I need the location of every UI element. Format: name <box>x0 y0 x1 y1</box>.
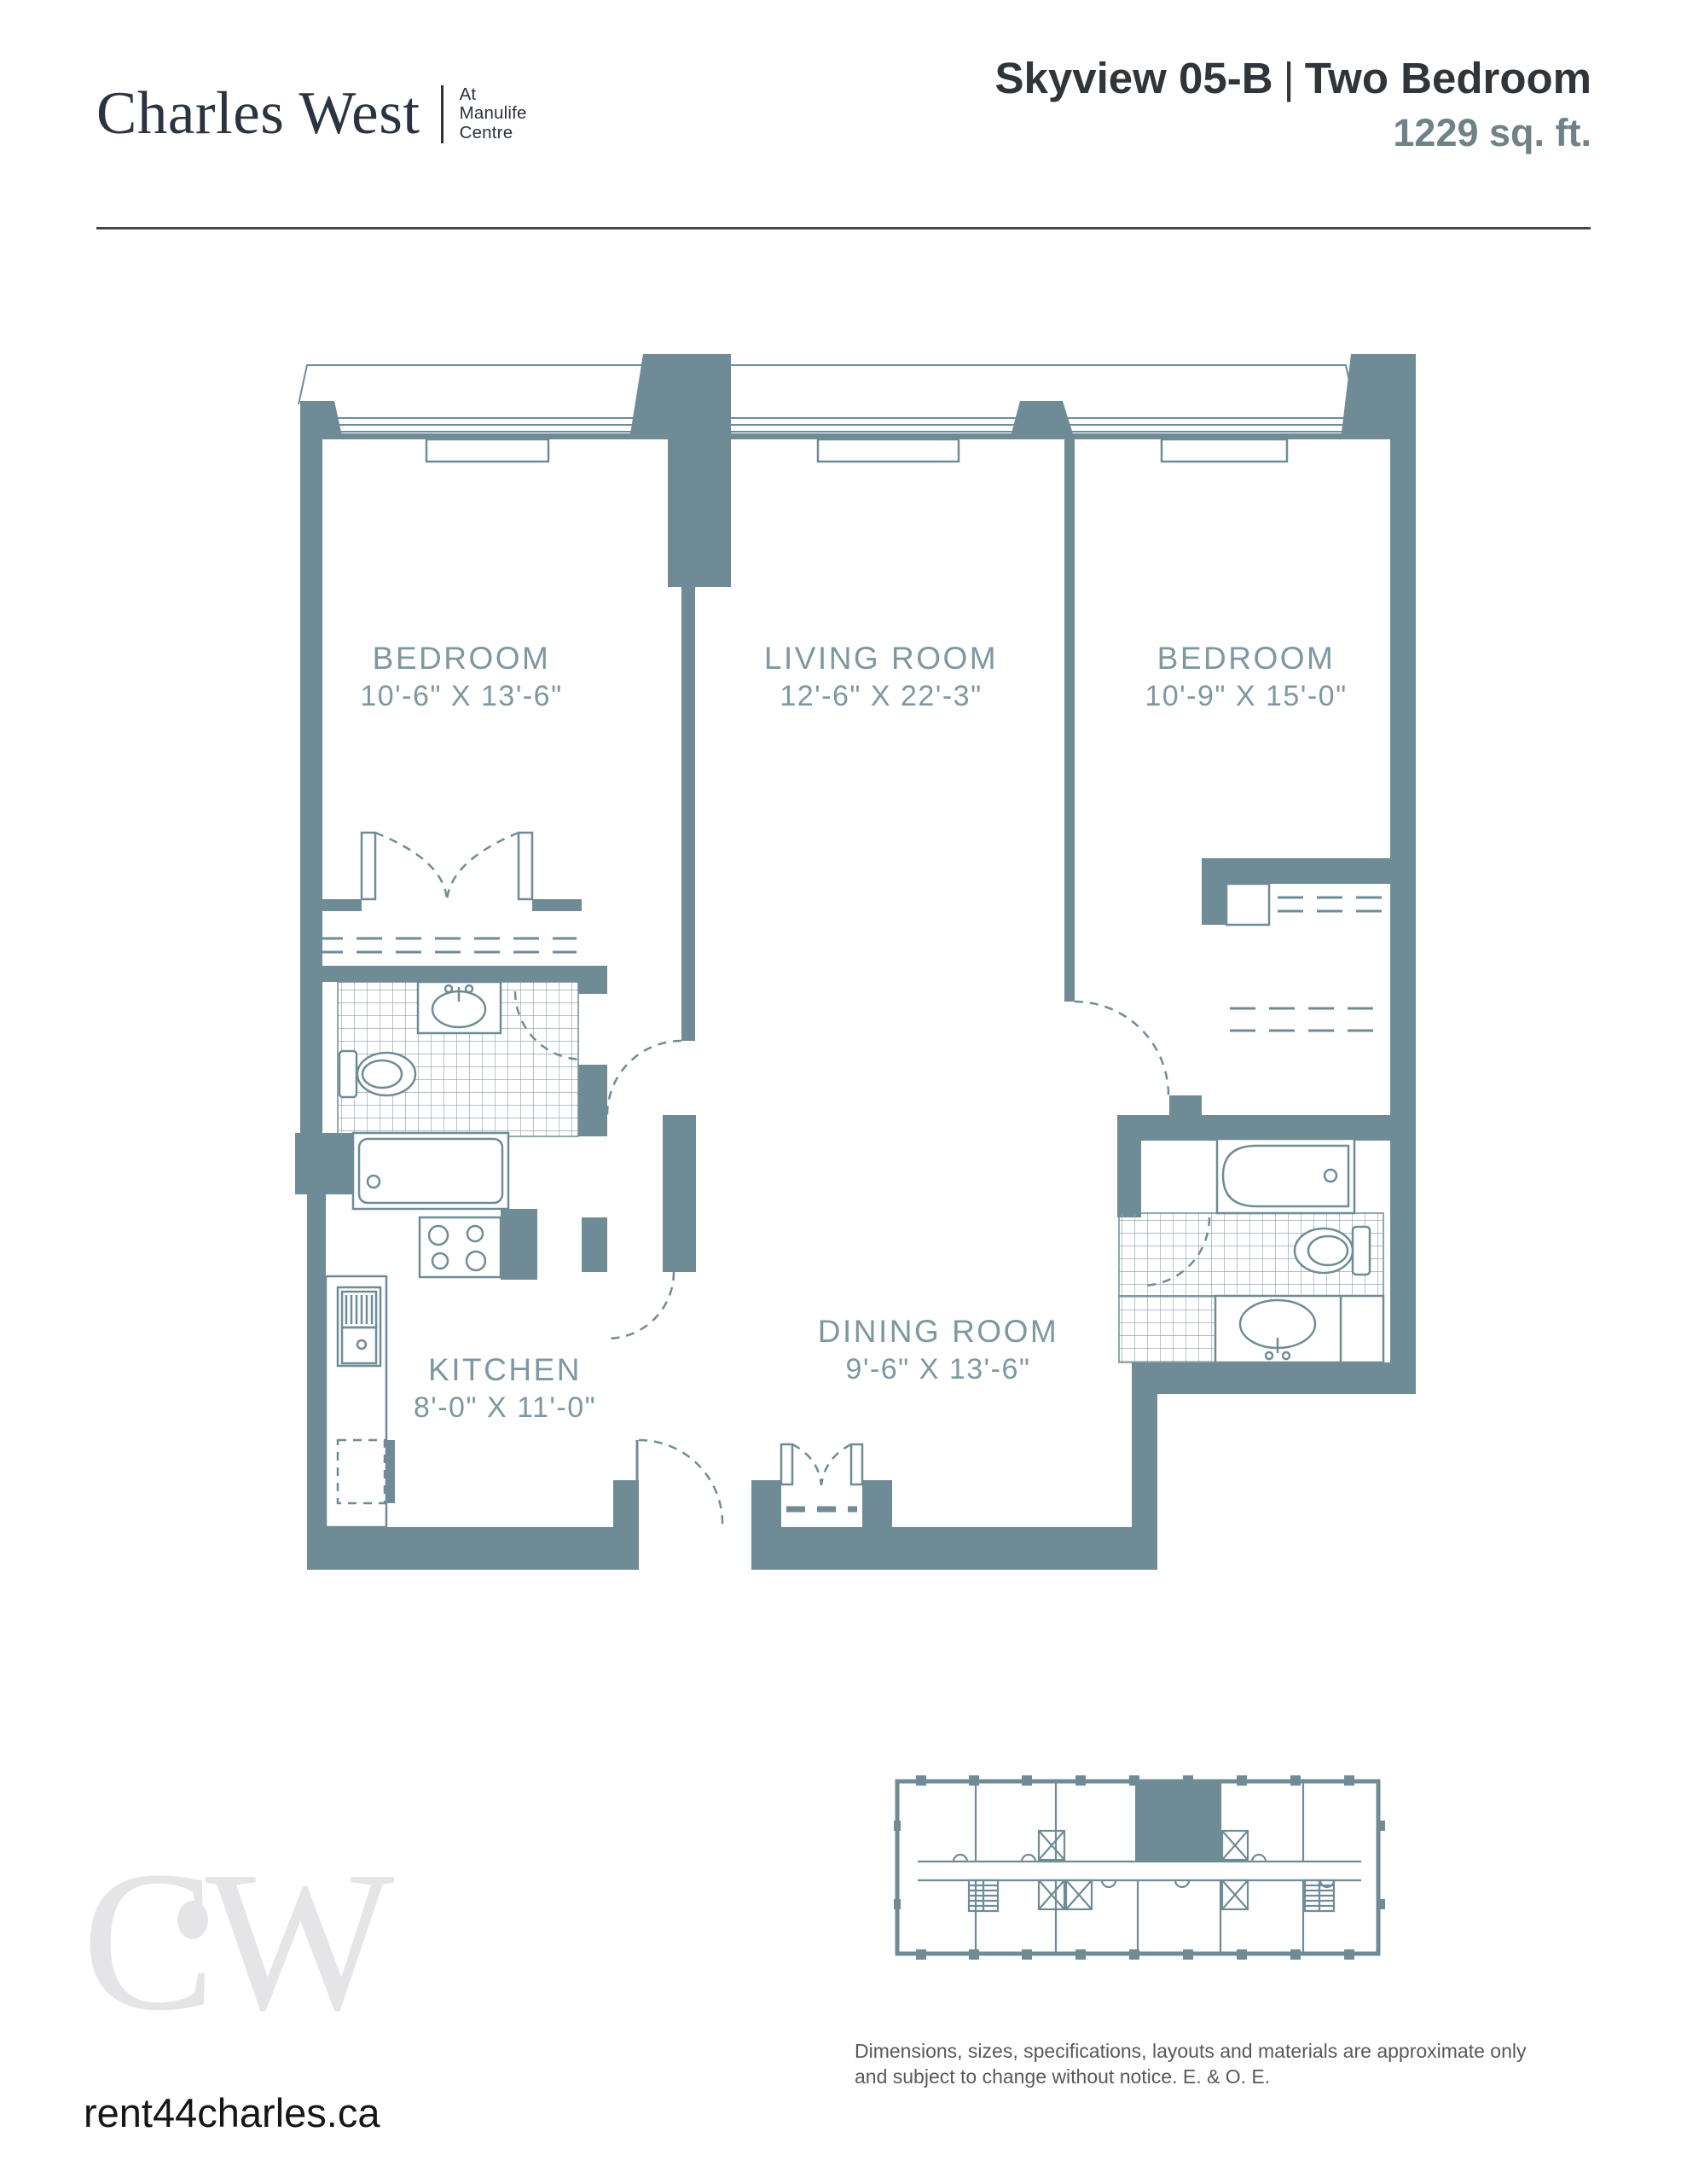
unit-title: Skyview 05-B|Two Bedroom <box>995 53 1592 103</box>
window-sills <box>426 439 1287 462</box>
disclaimer: Dimensions, sizes, specifications, layou… <box>855 2038 1526 2089</box>
toilet-2 <box>1353 1227 1370 1275</box>
tagline-line-3: Centre <box>460 124 527 143</box>
room-label-dining-room: DINING ROOM <box>818 1314 1058 1349</box>
room-label-bedroom-1: BEDROOM <box>373 641 551 676</box>
tagline-line-1: At <box>460 85 527 105</box>
unit-plan-name: Skyview 05-B <box>995 54 1273 102</box>
closet-bedroom-2 <box>1075 884 1387 1095</box>
brand-tagline: At Manulife Centre <box>460 85 527 143</box>
room-label-kitchen: KITCHEN <box>428 1352 582 1387</box>
bathtub-1 <box>353 1133 508 1209</box>
closet-bedroom-1 <box>317 833 577 952</box>
entry-doors <box>781 1444 862 1509</box>
disclaimer-line-1: Dimensions, sizes, specifications, layou… <box>855 2038 1526 2064</box>
brand-name: Charles West <box>96 84 420 144</box>
tagline-line-2: Manulife <box>460 104 527 124</box>
header-divider-line <box>96 227 1591 229</box>
room-dims-bedroom-1: 10'-6" X 13'-6" <box>360 680 562 712</box>
room-dims-dining-room: 9'-6" X 13'-6" <box>846 1353 1031 1385</box>
floor-plan-drawing: BEDROOM 10'-6" X 13'-6" LIVING ROOM 12'-… <box>290 350 1416 1570</box>
cw-watermark-dot <box>177 1901 208 1939</box>
title-separator: | <box>1273 54 1305 102</box>
disclaimer-line-2: and subject to change without notice. E.… <box>855 2064 1526 2089</box>
room-dims-kitchen: 8'-0" X 11'-0" <box>414 1391 596 1424</box>
walls <box>295 354 1416 1570</box>
room-dims-bedroom-2: 10'-9" X 15'-0" <box>1145 680 1347 712</box>
highlighted-unit <box>1135 1783 1220 1862</box>
unit-area: 1229 sq. ft. <box>995 111 1592 155</box>
balcony-window-band <box>299 365 1392 439</box>
key-plan <box>894 1771 1385 1964</box>
unit-plan-type: Two Bedroom <box>1305 54 1591 102</box>
website-text: rent44charles.ca <box>84 2089 380 2136</box>
floor-plan-sheet: Charles West At Manulife Centre Skyview … <box>0 0 1687 2184</box>
bedroom-2-door-swing <box>1075 1002 1168 1095</box>
kitchen-door-swing <box>639 1440 722 1527</box>
room-dims-living-room: 12'-6" X 22'-3" <box>780 680 982 712</box>
room-label-living-room: LIVING ROOM <box>764 641 998 676</box>
brand-logo: Charles West At Manulife Centre <box>96 84 527 144</box>
logo-divider-bar <box>441 85 443 143</box>
stove <box>420 1217 501 1277</box>
unit-title-block: Skyview 05-B|Two Bedroom 1229 sq. ft. <box>995 53 1592 155</box>
bathroom-1 <box>338 982 583 1209</box>
toilet-1 <box>339 1051 357 1097</box>
room-label-bedroom-2: BEDROOM <box>1157 641 1336 676</box>
cw-watermark: CW <box>82 1841 385 2042</box>
bathroom-2 <box>1119 1139 1383 1362</box>
